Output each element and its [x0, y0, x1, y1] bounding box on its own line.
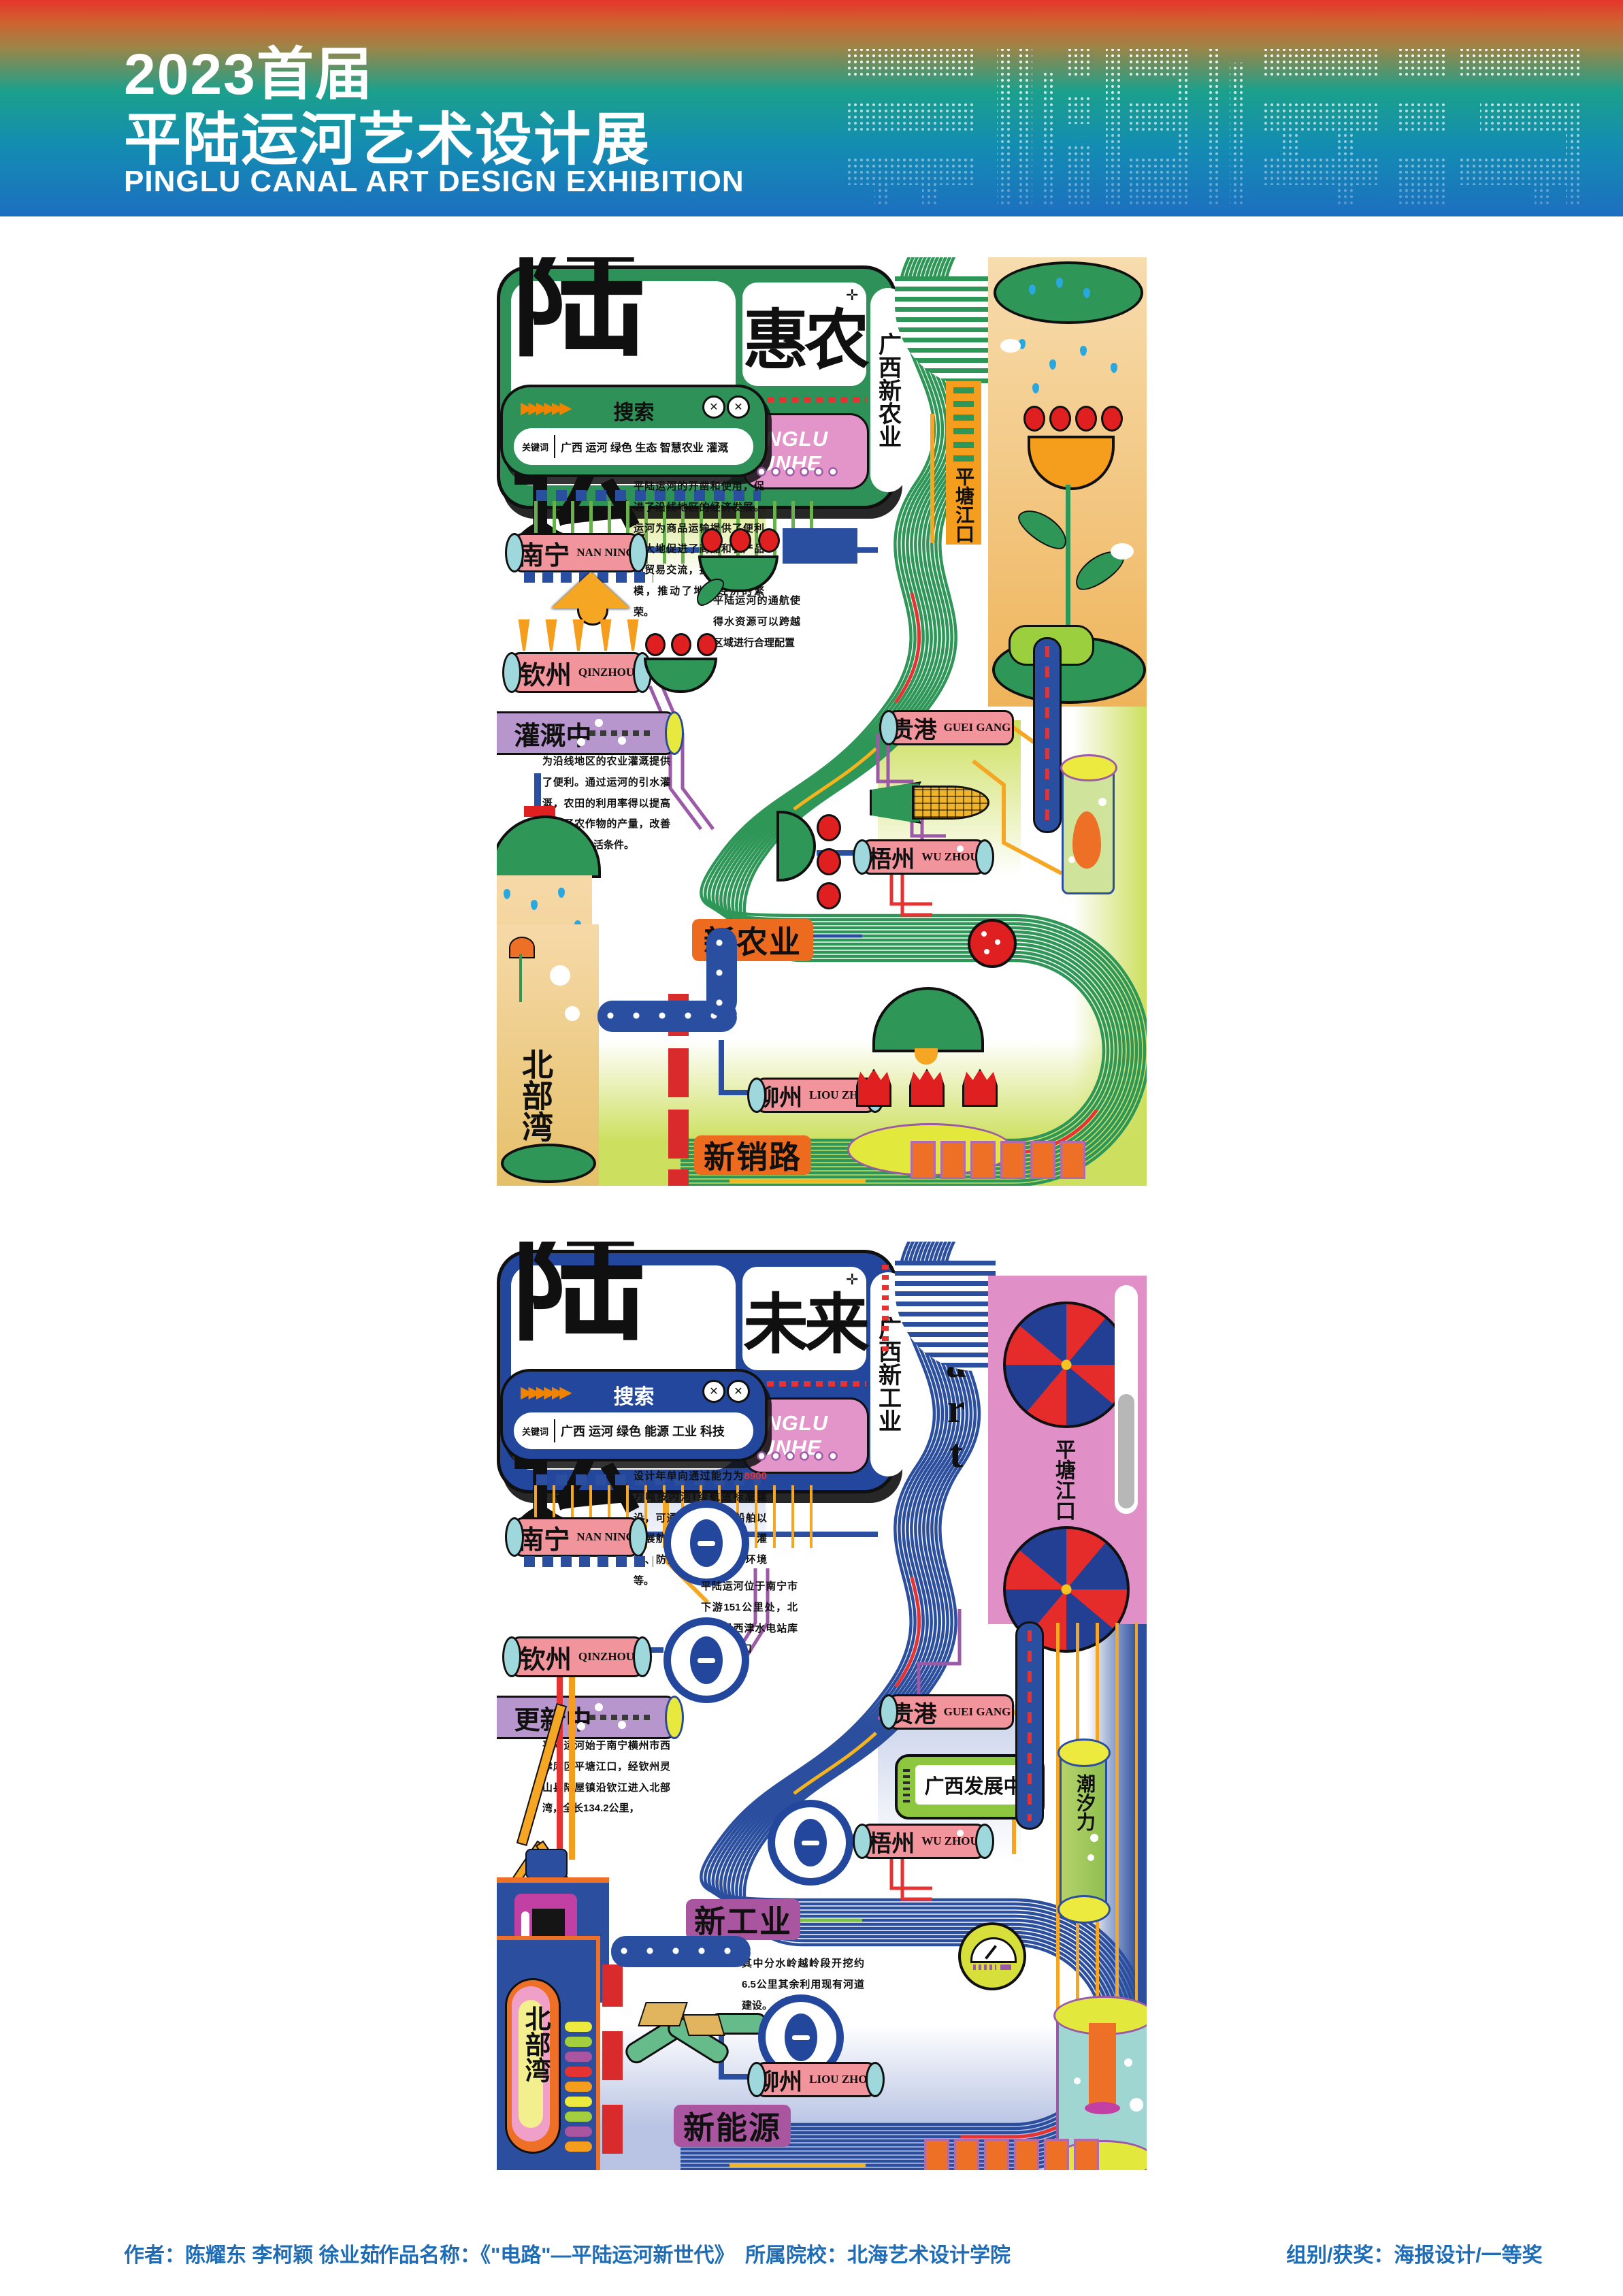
- minus-node: [663, 1617, 749, 1703]
- cargo-square: [1044, 2139, 1069, 2170]
- pingtang-banner: 平塘江口: [946, 381, 981, 545]
- seed: [984, 949, 989, 954]
- gauge-icon: [958, 1922, 1026, 1990]
- tide-label: 潮汐力: [1071, 1774, 1098, 1831]
- keyword-list: 广西 运河 绿色 生态 智慧农业 灌溉: [561, 438, 728, 455]
- city-name-en: GUEI GANG: [944, 721, 1011, 734]
- conveyor-icon: [623, 1994, 759, 2075]
- close-icon: ✕: [727, 1380, 750, 1403]
- tulip-bowl-icon: [1028, 436, 1115, 490]
- berry-column-icon: [817, 814, 841, 909]
- beibu-label: 北部湾: [517, 2005, 554, 2083]
- dotted-pipe: [611, 1936, 751, 1967]
- search-input-bar: 关键词 广西 运河 绿色 能源 工业 科技: [514, 1412, 753, 1449]
- cargo-squares-row: [924, 2139, 1099, 2170]
- bubble: [1000, 339, 1021, 353]
- package-icon: [682, 2014, 725, 2036]
- city-name: 钦州: [520, 654, 572, 692]
- page: 2023首届 平陆运河艺术设计展 PINGLU CANAL ART DESIGN…: [0, 0, 1623, 2296]
- city-name-en: QINZHOU: [578, 1650, 634, 1664]
- city-cylinder-liouzhou: 柳州 LIOU ZHOU: [755, 2062, 876, 2097]
- cylinder-cap: [505, 1517, 524, 1557]
- corn-icon: [870, 779, 989, 822]
- red-block: [668, 1048, 689, 1097]
- cylinder-cap: [879, 710, 898, 745]
- cylinder-cap: [853, 1824, 872, 1859]
- bubble: [1087, 1854, 1094, 1861]
- dot-row: [755, 466, 842, 479]
- tulip-icon: [856, 1069, 891, 1107]
- green-ellipse: [501, 1144, 596, 1183]
- irrigation-label: 灌溉中: [514, 715, 591, 752]
- cargo-square: [1000, 1141, 1026, 1179]
- wheat-icon: [953, 387, 974, 462]
- tag-new-energy: 新能源: [674, 2105, 791, 2147]
- carrot-icon: [570, 619, 587, 651]
- city-cylinder-qinzhou: 钦州 QINZHOU: [510, 652, 644, 693]
- cylinder-cap: [665, 1696, 684, 1739]
- raindrop-icon: [504, 889, 510, 899]
- cylinder-cap: [502, 652, 521, 693]
- funnel-icon: [994, 261, 1143, 324]
- beibu-label: 北部湾: [513, 1048, 558, 1142]
- red-block: [668, 1110, 689, 1159]
- pingtang-label: 平塘江口: [950, 467, 977, 543]
- beibu-panel: 北部湾: [497, 1936, 600, 2170]
- minus-node: [768, 1800, 853, 1886]
- jar-lid: [1060, 754, 1117, 781]
- note-paragraph: 平陆运河的通航使得水资源可以跨越区域进行合理配置: [713, 591, 800, 653]
- close-icon: ✕: [702, 395, 725, 419]
- turbine-panel: 平塘江口: [988, 1276, 1147, 1624]
- cylinder-cap: [633, 1636, 652, 1677]
- canal-pipe-dashed: [1033, 637, 1062, 833]
- footer-school: 所属院校：北海艺术设计学院: [745, 2238, 1011, 2268]
- blue-node-bar: [783, 528, 857, 564]
- bubble: [1074, 2077, 1081, 2084]
- raindrop-icon: [1080, 346, 1087, 356]
- red-block: [602, 2031, 623, 2080]
- tulip-trio: [856, 1069, 998, 1107]
- cylinder-cap: [975, 1824, 994, 1859]
- flower-panel: [988, 257, 1147, 707]
- city-name: 南宁: [518, 534, 570, 572]
- bubble: [565, 1006, 580, 1021]
- city-cylinder-gueigang: 贵港 GUEI GANG: [887, 1694, 1014, 1730]
- cargo-square: [1030, 1141, 1055, 1179]
- crane-pipe: [569, 1677, 575, 1860]
- leaf-icon: [1013, 502, 1074, 555]
- dot: [618, 737, 626, 745]
- cylinder-cap: [505, 533, 524, 572]
- header-en-subtitle: PINGLU CANAL ART DESIGN EXHIBITION: [124, 165, 744, 199]
- carrot-icon: [516, 619, 532, 651]
- cylinder-cap: [853, 839, 872, 875]
- raindrop-icon: [1032, 383, 1039, 393]
- cylinder-cap: [502, 1636, 521, 1677]
- turbine-icon: [1003, 1301, 1130, 1428]
- thermometer-icon: [1115, 1285, 1138, 1514]
- cargo-square: [954, 2139, 979, 2170]
- tulip-icon: [962, 1069, 998, 1107]
- dot: [577, 738, 585, 746]
- close-icon: ✕: [702, 1380, 725, 1403]
- keyword-list: 广西 运河 绿色 能源 工业 科技: [561, 1422, 725, 1440]
- footer-work-title: 作品名称：《"电路"—平陆运河新世代》: [378, 2238, 734, 2268]
- cylinder-cap: [629, 1517, 648, 1557]
- cargo-square: [984, 2139, 1009, 2170]
- header-cn-title: 平陆运河艺术设计展: [124, 94, 651, 176]
- city-name: 南宁: [518, 1519, 570, 1556]
- tag-new-sales: 新销路: [694, 1135, 811, 1175]
- cylinder-cap: [975, 839, 994, 875]
- poster-industry: 陆运 未来 PINGLU YUNHE 广西新工业 + ✛ start 平塘江口 …: [497, 1242, 1147, 2170]
- gauge-ticks: [973, 1964, 996, 1970]
- city-name: 梧州: [868, 841, 915, 874]
- search-title: 搜索: [503, 395, 765, 425]
- city-cylinder-qinzhou: 钦州 QINZHOU: [510, 1636, 644, 1677]
- exhibition-header: 2023首届 平陆运河艺术设计展 PINGLU CANAL ART DESIGN…: [0, 0, 1623, 216]
- bubble: [1098, 798, 1106, 806]
- tank-column-base: [1085, 2102, 1120, 2114]
- divider: [554, 435, 555, 458]
- dots-column: [903, 1769, 910, 1803]
- tide-cap: [1058, 1895, 1111, 1924]
- city-name-en: WU ZHOU: [921, 1834, 979, 1848]
- dotted-pipe: [706, 928, 737, 1016]
- cylinder-cap: [747, 2062, 766, 2097]
- keyword-label: 关键词: [522, 440, 548, 453]
- cylinder-cap: [879, 1694, 898, 1730]
- raindrop-icon: [1111, 363, 1117, 373]
- tulip-seeds: [1023, 406, 1123, 432]
- crane-load: [525, 1849, 568, 1879]
- bubble: [1090, 1834, 1098, 1842]
- flower-stem: [519, 954, 522, 1002]
- seed: [995, 939, 1000, 945]
- footer-authors: 作者：陈耀东 李柯颖 徐业茹: [124, 2238, 380, 2268]
- bubble: [1130, 2098, 1143, 2112]
- tide-cap: [1058, 1739, 1111, 1767]
- bubble: [1111, 543, 1134, 560]
- footer-award: 组别/获奖：海报设计/一等奖: [1286, 2238, 1543, 2268]
- bubble: [550, 965, 570, 986]
- poster1-search-box: ▶▶▶▶▶▶ 搜索 ✕ ✕ 关键词 广西 运河 绿色 生态 智慧农业 灌溉: [500, 385, 768, 477]
- cylinder-cap: [665, 711, 684, 755]
- red-block: [602, 2105, 623, 2154]
- gauge-tick: [1000, 1964, 1011, 1970]
- minus-node: [663, 1500, 749, 1586]
- cargo-square: [1014, 2139, 1039, 2170]
- corn-cob: [912, 786, 989, 820]
- flower-stem: [1066, 485, 1070, 648]
- city-name-en: GUEI GANG: [944, 1705, 1011, 1719]
- cargo-square: [970, 1141, 996, 1179]
- package-icon: [638, 2002, 688, 2026]
- red-dot-column: [882, 1265, 889, 1353]
- keyword-label: 关键词: [522, 1425, 548, 1438]
- poster-agriculture: 陆运 惠农 PINGLU YUNHE 广西新农业 + ✛ start 平塘江口: [497, 257, 1147, 1186]
- city-cylinder-wuzhou: 梧州 WU ZHOU: [861, 1824, 986, 1859]
- tomato-icon: [968, 919, 1017, 968]
- tide-cylinder: 潮汐力: [1058, 1739, 1108, 1921]
- carrot-icon: [543, 619, 559, 651]
- tank-column: [1089, 2023, 1116, 2107]
- city-cylinder-nanning: 南宁 NAN NING: [513, 533, 640, 572]
- raindrop-icon: [1049, 359, 1056, 370]
- carrot-row: [516, 619, 641, 651]
- cargo-square: [1060, 1141, 1085, 1179]
- tulip-icon: [909, 1069, 945, 1107]
- cylinder-cap: [866, 2062, 885, 2097]
- carrot-icon: [625, 619, 641, 651]
- bubble: [1124, 2058, 1132, 2067]
- carrot-icon: [597, 619, 614, 651]
- bubble: [1068, 856, 1075, 863]
- fish-jar-icon: [1060, 754, 1115, 900]
- lily-icon: [509, 937, 535, 958]
- stats-number: 8900: [744, 1470, 767, 1482]
- cylinder-cap: [629, 533, 648, 572]
- search-title: 搜索: [503, 1380, 765, 1410]
- color-pill-column: [565, 2022, 592, 2152]
- cylinder-cap: [747, 1078, 766, 1113]
- tag-new-industry: 新工业: [686, 1899, 800, 1940]
- lamp-icon: [551, 572, 630, 609]
- city-name-en: WU ZHOU: [921, 850, 979, 864]
- red-block: [602, 1964, 623, 2007]
- dot: [957, 845, 964, 852]
- divider: [554, 1419, 555, 1442]
- city-name-en: NAN NING: [576, 546, 634, 560]
- raindrop-icon: [531, 900, 538, 910]
- poster2-search-box: ▶▶▶▶▶▶ 搜索 ✕ ✕ 关键词 广西 运河 绿色 能源 工业 科技: [500, 1369, 768, 1461]
- raindrop-icon: [558, 888, 565, 898]
- pingtang-label: 平塘江口: [1048, 1439, 1078, 1521]
- cargo-square: [911, 1141, 936, 1179]
- plus-mark: ✛: [846, 1271, 858, 1289]
- red-block: [668, 1169, 689, 1186]
- dotted-progress: [589, 730, 651, 736]
- dot: [618, 1721, 626, 1729]
- stats-text: 设计年单向通过能力为: [634, 1470, 744, 1482]
- city-cylinder-nanning: 南宁 NAN NING: [513, 1517, 640, 1557]
- search-input-bar: 关键词 广西 运河 绿色 生态 智慧农业 灌溉: [514, 428, 753, 465]
- cargo-square: [1074, 2139, 1099, 2170]
- blue-square-row: [524, 1556, 653, 1567]
- dot: [957, 1830, 964, 1837]
- close-icon: ✕: [727, 395, 750, 419]
- city-name: 钦州: [520, 1638, 572, 1676]
- dot-row: [755, 1450, 842, 1463]
- plus-mark: ✛: [846, 287, 858, 304]
- irrigation-cylinder: 灌溉中: [497, 711, 676, 755]
- seed: [981, 931, 987, 937]
- berry-row-icon: [645, 633, 717, 656]
- beibu-panel: 北部湾: [497, 924, 599, 1186]
- city-name: 梧州: [868, 1825, 915, 1858]
- cargo-square: [940, 1141, 966, 1179]
- cargo-square: [924, 2139, 949, 2170]
- city-cylinder-gueigang: 贵港 GUEI GANG: [887, 710, 1014, 745]
- city-name-en: NAN NING: [576, 1530, 634, 1544]
- city-name-en: QINZHOU: [578, 666, 634, 679]
- canal-pipe-dashed: [1015, 1621, 1044, 1830]
- berry-row-icon: [701, 528, 780, 553]
- deco-square-kufic-pattern: 平陆运河: [847, 35, 1596, 206]
- city-cylinder-wuzhou: 梧州 WU ZHOU: [861, 839, 986, 875]
- dot: [595, 719, 603, 727]
- cargo-squares-row: [911, 1141, 1085, 1179]
